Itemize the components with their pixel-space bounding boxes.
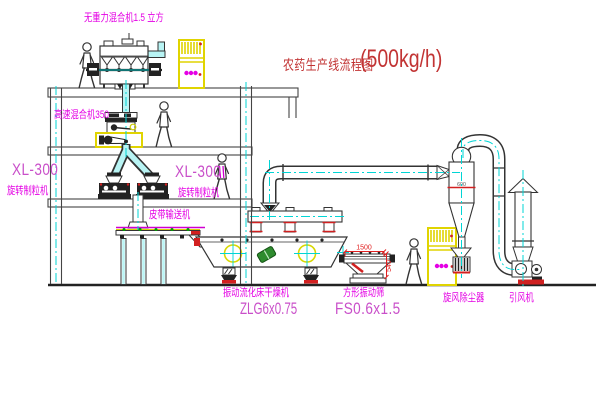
label-screen-name: 方形振动筛 (343, 288, 384, 299)
label-fan: 引风机 (509, 293, 534, 304)
vibrating-screen: 1500 540 (337, 245, 395, 284)
building-structure (48, 88, 298, 207)
label-belt-conveyor: 皮带输送机 (149, 210, 190, 221)
fluid-bed-dryer (194, 208, 347, 284)
page-title-capacity: (500kg/h) (360, 47, 442, 72)
induced-draft-fan (509, 179, 545, 285)
process-flow-diagram: 1500 540 600 (0, 0, 600, 403)
control-cabinet-upper (179, 40, 204, 88)
person-figure (406, 239, 421, 284)
dim-screen-width: 1500 (356, 245, 372, 252)
dryer-spring-foot (221, 268, 319, 284)
label-granulator-left-name: 旋转制粒机 (7, 186, 48, 197)
label-cyclone: 旋风除尘器 (443, 293, 484, 304)
label-dryer-name: 振动流化床干燥机 (223, 288, 289, 299)
label-dryer-model: ZLG6x0.75 (240, 300, 297, 317)
dim-screen-height: 540 (386, 260, 393, 272)
control-cabinet-lower (428, 228, 456, 285)
person-figure (156, 102, 171, 147)
label-granulator-right-model: XL-300 (175, 163, 221, 180)
label-granulator-right-name: 旋转制粒机 (178, 188, 219, 199)
belt-conveyor (116, 228, 209, 285)
label-high-speed-mixer: 高速混合机350 (54, 110, 109, 121)
label-gravity-mixer: 无重力混合机1.5 立方 (84, 13, 164, 24)
label-screen-model: FS0.6x1.5 (335, 300, 401, 317)
label-granulator-left-model: XL-300 (12, 161, 58, 178)
rotary-granulator-left (98, 173, 131, 200)
exhaust-duct (261, 164, 437, 214)
